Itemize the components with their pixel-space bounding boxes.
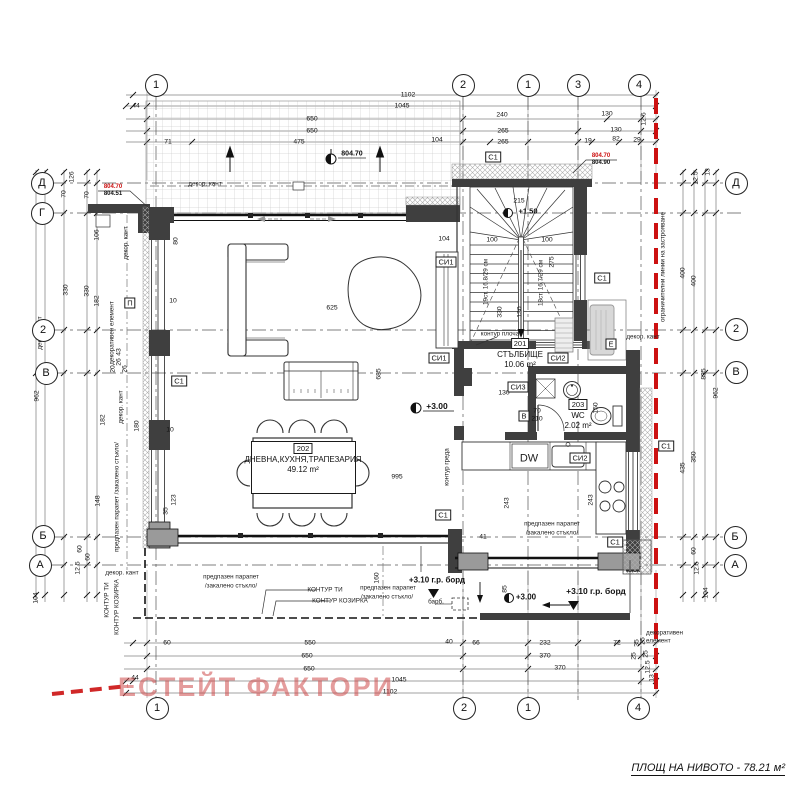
- element-tag: СИ2: [548, 353, 569, 364]
- dimension-label: 10: [166, 427, 174, 434]
- element-tag: C1: [485, 152, 501, 163]
- element-tag: СИ1: [436, 257, 457, 268]
- annotation-label: 18ст. 16.7/29 см: [537, 260, 545, 306]
- annotation-label: предпазен парапет: [360, 584, 416, 592]
- dimension-label: 19: [584, 138, 592, 145]
- dimension-label: 60: [85, 553, 92, 561]
- dimension-label: 10: [169, 298, 177, 305]
- grid-bubble-label: 1: [145, 74, 168, 97]
- grid-bubble-label: 4: [628, 74, 651, 97]
- annotation-label: /закалено стъкло/: [205, 582, 257, 590]
- dimension-label: 330: [497, 306, 504, 317]
- dimension-label: 1102: [401, 92, 416, 99]
- grid-bubble-label: В: [35, 362, 58, 385]
- element-tag: C1: [171, 376, 187, 387]
- element-tag: П: [124, 298, 135, 309]
- dimension-label: 104: [438, 236, 449, 243]
- annotation-label: декор. кант: [122, 226, 130, 259]
- dimension-label: 400: [691, 275, 698, 286]
- grid-bubble-label: Г: [31, 202, 54, 225]
- room-name: ДНЕВНА,КУХНЯ,ТРАПЕЗАРИЯ: [244, 455, 361, 464]
- dimension-label: 104: [703, 587, 710, 598]
- annotation-label: декор. кант: [188, 180, 221, 188]
- dimension-label: 400: [680, 267, 687, 278]
- element-tag: СИ2: [570, 453, 591, 464]
- dimension-label: 60: [77, 545, 84, 553]
- annotation-label: DW: [520, 455, 538, 463]
- element-tag: C1: [607, 537, 623, 548]
- elevation-label: +3.10 г.р. борд: [566, 586, 626, 596]
- dimension-label: 44: [132, 103, 140, 110]
- dimension-label: 123: [171, 494, 178, 505]
- dimension-label: 182: [100, 414, 107, 425]
- dimension-label: 12.5: [75, 561, 82, 574]
- dimension-label: 130: [601, 111, 612, 118]
- dimension-label: 60: [691, 547, 698, 555]
- dimension-label: 625: [326, 305, 337, 312]
- room-area: 2.02 m²: [564, 421, 591, 430]
- watermark: ЕСТЕЙТ ФАКТОРИ: [118, 672, 394, 703]
- room-area: 49.12 m²: [287, 465, 319, 474]
- room-area: 10.06 m²: [504, 360, 536, 369]
- elevation-label: 804.70: [104, 184, 122, 190]
- dimension-label: 370: [554, 665, 565, 672]
- grid-bubble-label: 2: [725, 318, 748, 341]
- dimension-label: 435: [680, 462, 687, 473]
- elevation-label: +3.00: [426, 401, 448, 411]
- dimension-label: 35: [634, 639, 641, 647]
- grid-bubble-label: В: [725, 361, 748, 384]
- annotation-label: КОНТУР КОЗИРКА: [113, 579, 121, 635]
- dimension-label: 82: [612, 136, 620, 143]
- dimension-label: 12.5: [645, 660, 652, 673]
- dimension-label: 148: [95, 495, 102, 506]
- dimension-label: 106: [94, 229, 101, 240]
- dimension-label: 1045: [394, 103, 409, 110]
- dimension-label: 100: [541, 237, 552, 244]
- dimension-label: 232: [539, 640, 550, 647]
- dimension-label: 26: [122, 365, 129, 373]
- dimension-label: 962: [34, 390, 41, 401]
- dimension-label: 25: [631, 652, 638, 660]
- grid-bubble-label: А: [724, 554, 747, 577]
- dimension-label: 182: [94, 295, 101, 306]
- dimension-label: 265: [497, 139, 508, 146]
- grid-bubble-label: Д: [725, 172, 748, 195]
- dimension-label: 70: [84, 191, 91, 199]
- annotation-label: КОНТУР ТИ: [307, 586, 342, 594]
- grid-bubble-label: 1: [517, 697, 540, 720]
- dimension-label: 265: [497, 128, 508, 135]
- dimension-label: 40: [445, 639, 453, 646]
- dimension-label: 20: [110, 365, 117, 373]
- elevation-label: 804.90: [592, 160, 610, 166]
- element-tag: СИ1: [429, 353, 450, 364]
- grid-bubble-label: 2: [453, 697, 476, 720]
- dimension-label: 650: [301, 653, 312, 660]
- dimension-label: 180: [134, 420, 141, 431]
- dimension-label: 72: [613, 640, 621, 647]
- annotation-label: предпазен парапет: [203, 573, 259, 581]
- room-name: WC: [571, 411, 584, 420]
- dimension-label: 70: [533, 408, 541, 415]
- dimension-label: 60: [163, 640, 171, 647]
- annotation-label: предпазен парапет /закалено стъкло/: [113, 442, 121, 552]
- dimension-label: 330: [63, 284, 70, 295]
- dimension-label: 275: [549, 256, 556, 267]
- dimension-label: 35: [163, 507, 170, 515]
- elevation-label: +3.00: [516, 593, 536, 602]
- annotation-label: декор. кант: [117, 390, 125, 423]
- annotation-label: /закалено стъкло/: [526, 529, 578, 537]
- dimension-label: 13: [705, 168, 712, 176]
- dimension-label: 104: [33, 592, 40, 603]
- elevation-label: 804.51: [104, 191, 122, 197]
- dimension-label: 475: [293, 139, 304, 146]
- dimension-label: 100: [486, 237, 497, 244]
- element-tag: Е: [605, 339, 616, 350]
- dimension-label: 995: [391, 474, 402, 481]
- dimension-label: 330: [84, 285, 91, 296]
- grid-bubble-label: 2: [32, 319, 55, 342]
- dimension-label: 550: [304, 640, 315, 647]
- room-number: 201: [511, 338, 530, 349]
- dimension-label: 43: [116, 348, 123, 356]
- grid-bubble-label: Б: [32, 525, 55, 548]
- room-name: СТЪЛБИЩЕ: [497, 350, 543, 359]
- dimension-label: 71: [164, 139, 172, 146]
- annotation-label: контур греда: [443, 448, 451, 485]
- grid-bubble-label: 2: [452, 74, 475, 97]
- dimension-label: 29: [633, 137, 641, 144]
- elevation-label: +1.50: [519, 207, 538, 216]
- dimension-label: 12.6: [641, 112, 648, 125]
- dimension-label: 160: [374, 572, 381, 583]
- grid-bubble-label: Д: [31, 172, 54, 195]
- element-tag: B: [518, 411, 529, 422]
- grid-bubble-label: 1: [517, 74, 540, 97]
- room-label: 203WC2.02 m²: [564, 399, 591, 430]
- element-tag: C1: [594, 273, 610, 284]
- dimension-label: 85: [502, 585, 509, 593]
- dimension-label: 130: [610, 127, 621, 134]
- room-label: 201СТЪЛБИЩЕ10.06 m²: [497, 338, 543, 369]
- dimension-label: 215: [513, 198, 524, 205]
- dimension-label: 70: [61, 190, 68, 198]
- annotation-label: декоративен елемент: [108, 301, 116, 364]
- annotation-label: контур плоча: [481, 330, 519, 338]
- grid-bubble-label: 3: [567, 74, 590, 97]
- annotation-label: ограничителни линии на застрояване: [659, 212, 667, 322]
- dimension-label: 350: [691, 451, 698, 462]
- dimension-label: 962: [713, 387, 720, 398]
- dimension-label: 243: [588, 494, 595, 505]
- annotation-label: барб.: [428, 598, 444, 606]
- element-tag: СИ3: [508, 382, 529, 393]
- element-tag: C1: [658, 441, 674, 452]
- level-area-note: ПЛОЩ НА НИВОТО - 78.21 м²: [631, 762, 785, 776]
- dimension-label: 12.5: [694, 561, 701, 574]
- dimension-label: 685: [376, 368, 383, 379]
- dimension-label: 12.5: [693, 171, 700, 184]
- elevation-label: +3.10 г.р. борд: [409, 576, 465, 585]
- room-label: 202ДНЕВНА,КУХНЯ,ТРАПЕЗАРИЯ49.12 m²: [244, 443, 361, 474]
- dimension-label: 650: [306, 116, 317, 123]
- annotation-label: /закалено стъкло/: [361, 593, 413, 601]
- dimension-label: 104: [431, 137, 442, 144]
- dimension-label: 650: [306, 128, 317, 135]
- grid-bubble-label: Б: [724, 526, 747, 549]
- dimension-label: 80: [173, 237, 180, 245]
- room-number: 202: [294, 443, 313, 454]
- dimension-label: 240: [496, 112, 507, 119]
- dimension-label: 41: [479, 534, 487, 541]
- dimension-label: 13: [649, 674, 656, 682]
- annotation-label: 19ст. 16.8/29 см: [482, 259, 490, 305]
- grid-bubble-label: 4: [627, 697, 650, 720]
- dimension-label: 150: [593, 402, 600, 413]
- dimension-label: 835: [701, 368, 708, 379]
- floor-plan-sheet: 110244104565024013012.665026513071475104…: [0, 0, 793, 793]
- annotation-label: декор. кант: [105, 569, 138, 577]
- annotation-label: декор. кант: [626, 333, 659, 341]
- element-tag: C1: [435, 510, 451, 521]
- dimension-label: 66: [472, 640, 480, 647]
- annotation-label: КОНТУР КОЗИРКА: [312, 597, 368, 605]
- dimension-label: 370: [539, 653, 550, 660]
- dimension-label: 130: [517, 306, 524, 317]
- room-number: 203: [569, 399, 588, 410]
- elevation-label: 804.70: [592, 153, 610, 159]
- dimension-label: 243: [504, 497, 511, 508]
- grid-bubble-label: А: [29, 554, 52, 577]
- dimension-label: 25: [643, 650, 650, 658]
- dimension-label: 126: [69, 171, 76, 182]
- elevation-label: 804.70: [341, 151, 362, 158]
- annotation-label: предпазен парапет: [524, 520, 580, 528]
- dimension-label: 210: [531, 416, 542, 423]
- annotation-label: КОНТУР ТИ: [103, 582, 111, 617]
- annotation-label: декоративен елемент: [646, 630, 694, 645]
